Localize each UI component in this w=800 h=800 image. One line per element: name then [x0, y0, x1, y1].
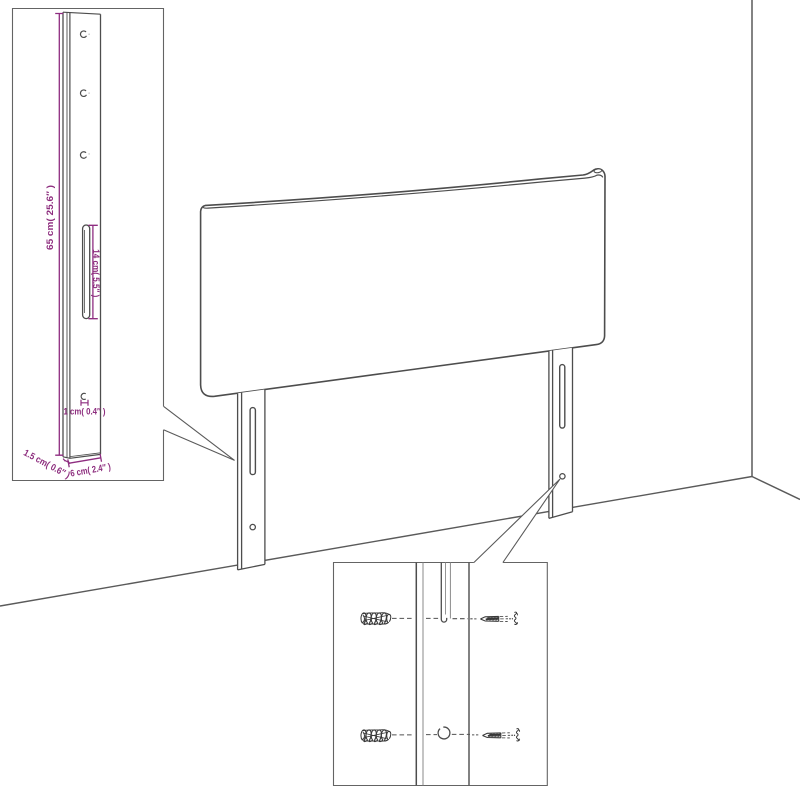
svg-text:65 cm( 25.6″ ): 65 cm( 25.6″ ) — [44, 185, 55, 250]
svg-text:14 cm( 5.5″ ): 14 cm( 5.5″ ) — [91, 249, 102, 297]
svg-text:1 cm( 0.4″ ): 1 cm( 0.4″ ) — [64, 406, 106, 417]
